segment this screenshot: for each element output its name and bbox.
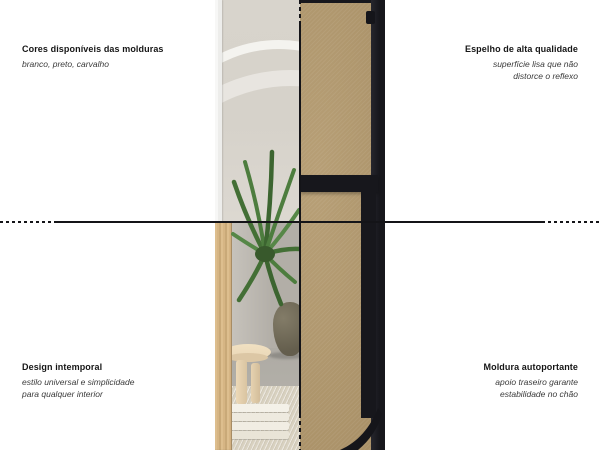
feature-note-frame-colors: Cores disponíveis das molduras branco, p…	[22, 44, 164, 71]
feature-title: Design intemporal	[22, 362, 134, 372]
towel	[224, 422, 289, 430]
horizontal-divider-dotted-left	[0, 221, 57, 223]
feature-title: Espelho de alta qualidade	[465, 44, 578, 54]
towel	[226, 431, 289, 439]
feature-note-mirror-quality: Espelho de alta qualidade superfície lis…	[465, 44, 578, 82]
feature-note-freestanding-frame: Moldura autoportante apoio traseiro gara…	[484, 362, 579, 400]
towel	[225, 413, 289, 421]
product-infographic: Cores disponíveis das molduras branco, p…	[0, 0, 600, 450]
palm-plant	[231, 148, 300, 356]
towel-stack	[223, 404, 289, 440]
feature-title: Cores disponíveis das molduras	[22, 44, 164, 54]
towel	[223, 404, 289, 412]
vertical-divider-dashed-top	[299, 0, 301, 26]
vertical-divider	[299, 24, 301, 416]
mirror-back-view	[300, 0, 385, 450]
wooden-stool-leg	[236, 360, 247, 404]
feature-subtitle-line: estilo universal e simplicidade	[22, 377, 134, 389]
feature-subtitle-line: branco, preto, carvalho	[22, 59, 164, 71]
oak-frame-edge	[215, 222, 232, 450]
horizontal-divider-dotted-right	[542, 221, 600, 223]
feature-note-timeless-design: Design intemporal estilo universal e sim…	[22, 362, 134, 400]
wooden-stool-leg	[251, 363, 260, 403]
white-frame-edge	[215, 0, 222, 222]
feature-subtitle-line: para qualquer interior	[22, 389, 134, 401]
horizontal-divider	[57, 221, 542, 223]
vertical-divider-dashed-bottom	[299, 414, 301, 450]
stand-support-leg	[300, 0, 385, 450]
feature-subtitle-line: superfície lisa que não	[465, 59, 578, 71]
feature-title: Moldura autoportante	[484, 362, 579, 372]
mirror-front-view	[215, 0, 300, 450]
feature-subtitle-line: distorce o reflexo	[465, 71, 578, 83]
feature-subtitle-line: apoio traseiro garante	[484, 377, 579, 389]
feature-subtitle-line: estabilidade no chão	[484, 389, 579, 401]
